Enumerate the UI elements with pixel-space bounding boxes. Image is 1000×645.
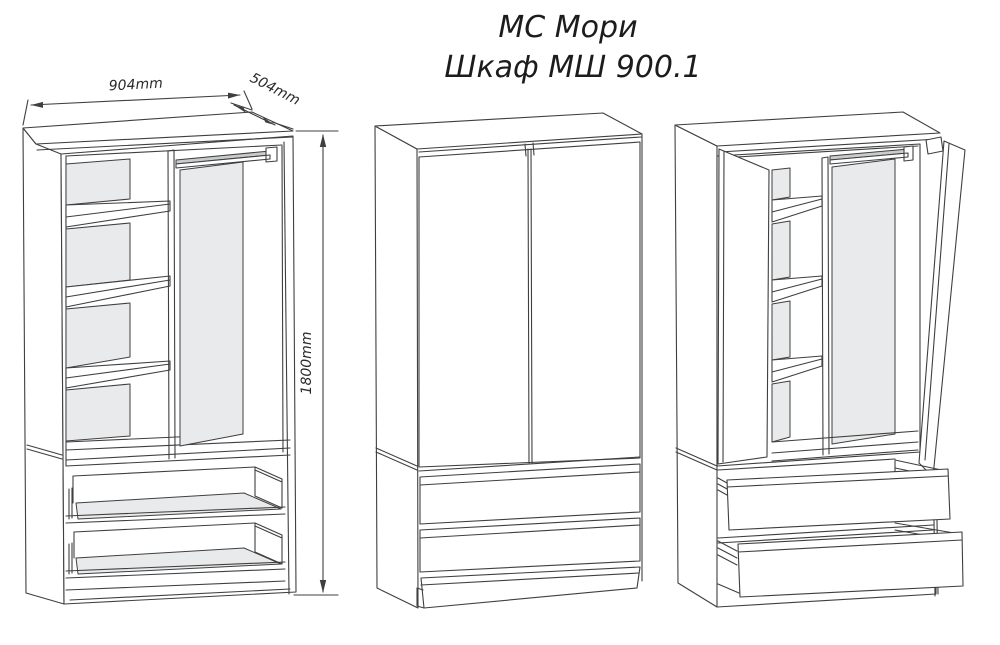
dimension-width-label: 904mm bbox=[108, 76, 163, 95]
door-handle-bracket bbox=[926, 137, 943, 154]
left-side-panel bbox=[23, 128, 64, 604]
back-panel-shading-right bbox=[180, 162, 243, 446]
title-model: Шкаф МШ 900.1 bbox=[444, 50, 701, 85]
back-panel-shading-right bbox=[832, 159, 895, 444]
technical-drawing-page: МС Мори Шкаф МШ 900.1 904mm bbox=[0, 0, 1000, 645]
left-side-panel bbox=[375, 126, 418, 608]
doors-front bbox=[419, 142, 640, 467]
wardrobe-drawing: МС Мори Шкаф МШ 900.1 904mm bbox=[0, 0, 1000, 645]
open-door-left bbox=[718, 149, 769, 464]
dimension-height-label: 1800mm bbox=[299, 332, 315, 395]
view-closed bbox=[375, 113, 642, 608]
drawer-front-upper-extended bbox=[727, 469, 950, 530]
title-series: МС Мори bbox=[498, 10, 637, 45]
left-side-panel bbox=[675, 125, 717, 607]
